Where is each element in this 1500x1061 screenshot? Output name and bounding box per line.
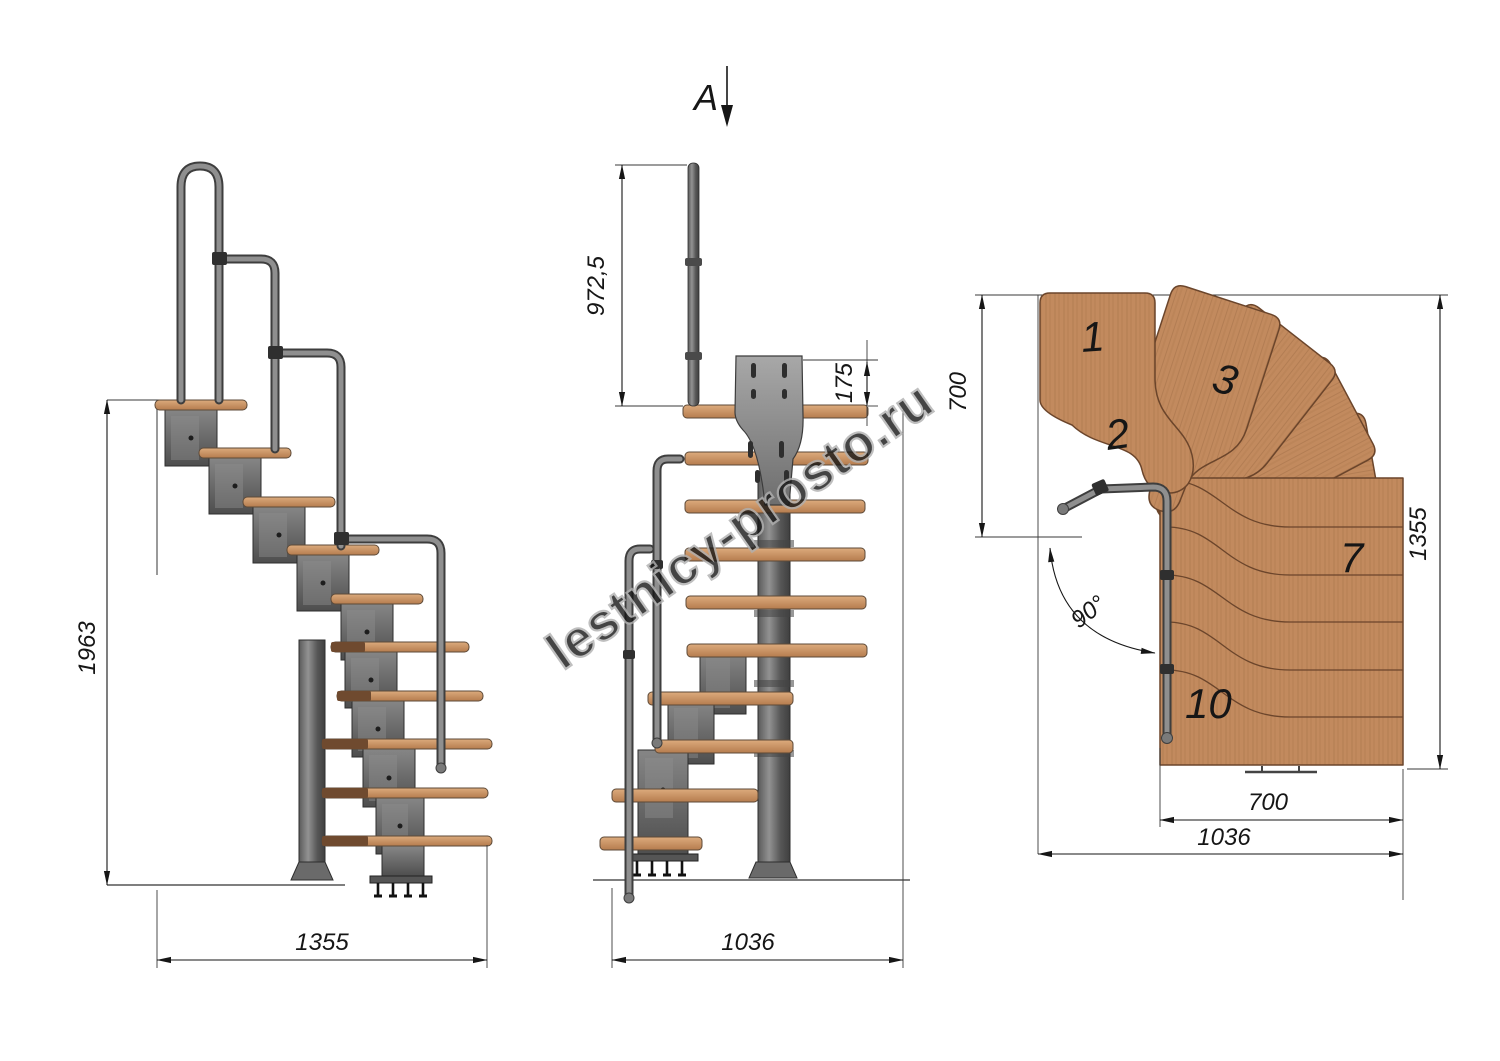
tread xyxy=(287,545,379,555)
plan-base-bracket xyxy=(1245,766,1317,772)
column-base xyxy=(291,862,333,880)
side-elevation-view: 1963 1355 xyxy=(74,166,492,968)
dim-front-width: 1036 xyxy=(721,929,775,956)
staircase-drawing: A xyxy=(0,0,1500,1061)
handrail-end-cap xyxy=(436,763,446,773)
module xyxy=(382,846,424,876)
tread xyxy=(243,497,335,507)
dim-front-bracket: 175 xyxy=(831,362,858,403)
tread xyxy=(612,789,758,802)
front-baluster xyxy=(685,163,702,406)
turn-angle-arc xyxy=(1050,548,1155,653)
support-column xyxy=(299,640,325,866)
rail-clamp xyxy=(212,252,227,265)
step-number-1: 1 xyxy=(1079,312,1106,361)
handrail-end-cap xyxy=(652,738,662,748)
tread xyxy=(155,400,247,410)
section-label: A xyxy=(692,77,718,118)
section-arrow-icon xyxy=(721,105,733,127)
step-number-10: 10 xyxy=(1185,680,1232,727)
tread xyxy=(322,836,492,846)
dim-plan-turn-angle: 90° xyxy=(1066,590,1112,634)
rail-clamp xyxy=(268,346,283,359)
technical-drawing-page: A xyxy=(0,0,1500,1061)
handrail-end-cap xyxy=(1058,504,1069,515)
tread xyxy=(331,594,423,604)
tread xyxy=(331,642,469,652)
rail-clamp xyxy=(1160,664,1174,674)
plan-view: 1 2 3 7 10 700 90° xyxy=(945,283,1448,900)
column-base xyxy=(749,862,797,878)
dim-plan-total-width: 1036 xyxy=(1197,824,1251,851)
rail-clamp xyxy=(623,650,635,659)
tread xyxy=(337,691,483,701)
tread xyxy=(686,596,866,609)
dim-plan-length: 1355 xyxy=(1405,507,1432,561)
tread xyxy=(655,740,793,753)
anchor-base xyxy=(370,876,432,897)
section-mark: A xyxy=(692,66,733,127)
dim-side-length: 1355 xyxy=(295,929,349,956)
anchor-base xyxy=(626,854,698,861)
dim-plan-flight-width: 700 xyxy=(1248,789,1289,816)
rail-clamp xyxy=(1160,570,1174,580)
handrail-end-cap xyxy=(1162,733,1173,744)
handrail-end-cap xyxy=(624,893,634,903)
tread xyxy=(600,837,702,850)
tread xyxy=(322,739,492,749)
step-number-7: 7 xyxy=(1340,534,1365,581)
tread xyxy=(322,788,488,798)
dim-plan-entry-depth: 700 xyxy=(945,371,972,412)
dim-side-height: 1963 xyxy=(74,621,101,675)
tread xyxy=(687,644,867,657)
tread xyxy=(648,692,793,705)
rail-clamp xyxy=(334,532,349,545)
dim-front-rail-height: 972,5 xyxy=(583,255,610,316)
